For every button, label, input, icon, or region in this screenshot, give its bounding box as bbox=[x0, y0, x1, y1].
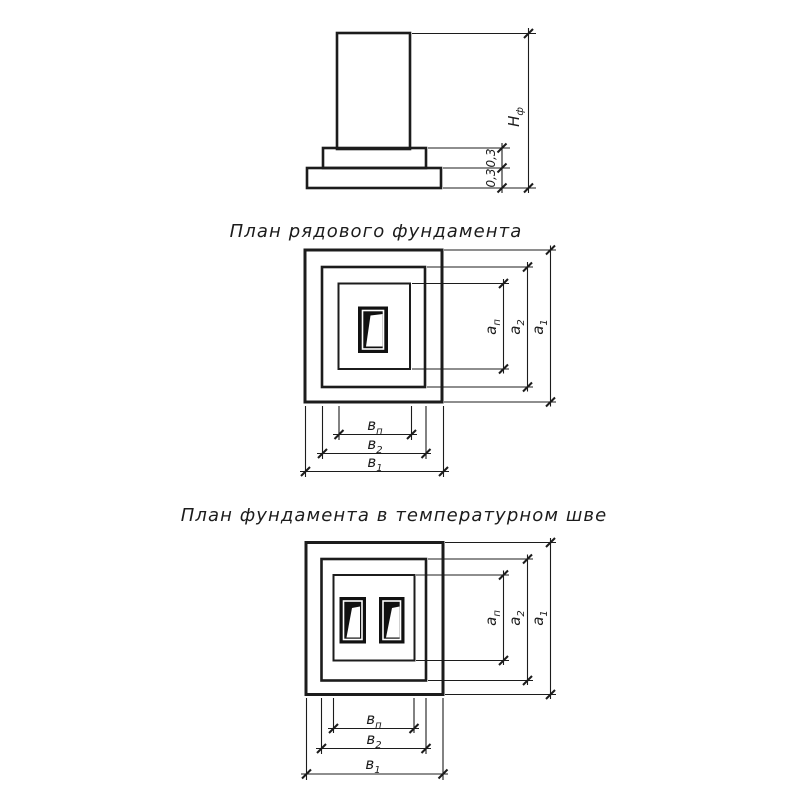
dim-label-v-p: вп bbox=[366, 710, 382, 731]
dim-label-a-2: а2 bbox=[506, 610, 527, 626]
dim-label-v-1: в1 bbox=[365, 755, 380, 776]
plan-joint-right-dimensions: ап а2 а1 bbox=[482, 538, 555, 699]
column-outline bbox=[337, 33, 410, 149]
dim-label-step-lower: 0,3 bbox=[484, 168, 498, 187]
dim-label-v-2: в2 bbox=[366, 730, 381, 751]
dim-label-v-1: в1 bbox=[367, 453, 382, 474]
lower-footing-step bbox=[307, 168, 441, 188]
dim-label-a-p: ап bbox=[482, 319, 503, 335]
dim-label-a-1: а1 bbox=[529, 319, 550, 335]
column-socket bbox=[358, 307, 388, 354]
column-socket-left bbox=[340, 597, 367, 644]
dim-label-a-2: а2 bbox=[506, 319, 527, 335]
column-socket-right bbox=[379, 597, 405, 644]
dim-label-a-1: а1 bbox=[529, 610, 550, 626]
dim-label-a-p: ап bbox=[482, 610, 503, 626]
footing-middle-step-outline bbox=[322, 559, 427, 681]
plan-ordinary-title: План рядового фундамента bbox=[230, 221, 523, 242]
plan-joint-title: План фундамента в температурном шве bbox=[181, 505, 608, 526]
plan-ordinary-right-dimensions: ап а2 а1 bbox=[482, 246, 555, 407]
dim-label-step-upper: 0,3 bbox=[484, 148, 498, 167]
upper-footing-step bbox=[323, 148, 426, 168]
foundation-drawing: Нф 0,3 0,3 План рядового фундамента bbox=[0, 0, 800, 800]
plan-joint: План фундамента в температурном шве bbox=[181, 505, 608, 780]
footing-bottom-step-outline bbox=[306, 543, 443, 695]
elevation-step-dimensions: 0,3 0,3 bbox=[484, 143, 507, 193]
plan-ordinary: План рядового фундамента ап а2 bbox=[230, 221, 556, 477]
dim-label-Hf: Нф bbox=[505, 107, 526, 127]
drawing-canvas: Нф 0,3 0,3 План рядового фундамента bbox=[0, 0, 800, 800]
elevation-view: Нф 0,3 0,3 bbox=[307, 28, 536, 193]
dim-label-v-p: вп bbox=[367, 416, 383, 437]
